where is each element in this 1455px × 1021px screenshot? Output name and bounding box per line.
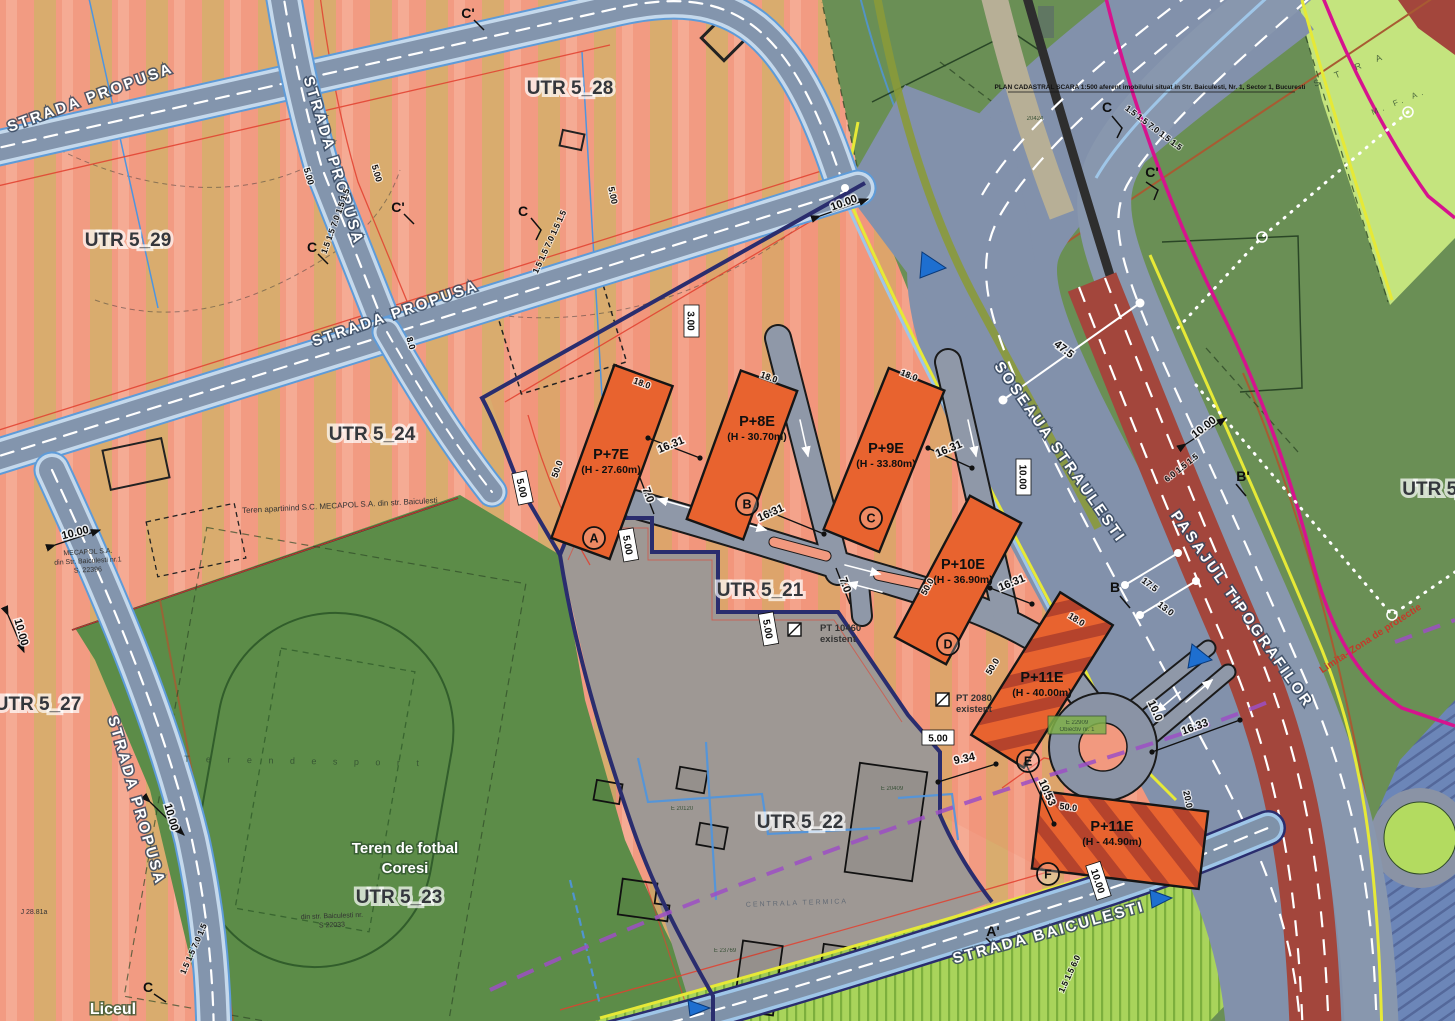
building-F-code: P+11E bbox=[1090, 819, 1133, 835]
zone-label-utr27: UTR 5_27 bbox=[0, 694, 81, 715]
building-A-letter: A bbox=[589, 532, 598, 546]
building-B-code: P+8E bbox=[739, 414, 775, 430]
zone-label-utr21: UTR 5_21 bbox=[717, 580, 804, 601]
cad-e20120: E 20120 bbox=[671, 806, 694, 812]
area-label-liceul: Liceul bbox=[90, 1001, 136, 1018]
section-cp-2: C' bbox=[461, 5, 474, 21]
building-C-code: P+9E bbox=[868, 441, 904, 457]
section-cp-3: C' bbox=[1145, 164, 1158, 180]
note-j2881: J 28.81a bbox=[21, 909, 48, 916]
building-D-height: (H - 36.90m) bbox=[933, 574, 993, 586]
cad-e20409: E 20409 bbox=[881, 786, 904, 792]
building-E-code: P+11E bbox=[1020, 670, 1063, 686]
zone-label-utr24: UTR 5_24 bbox=[329, 424, 416, 445]
note-mecapol-3: S. 22396 bbox=[74, 566, 102, 574]
note-pt10460: PT 10460 bbox=[820, 623, 861, 634]
note-obiectiv-2: Obiectiv nr. 1 bbox=[1059, 727, 1095, 733]
section-cp-1: C' bbox=[391, 199, 404, 215]
section-bp: B' bbox=[1236, 468, 1249, 484]
building-F-height: (H - 44.90m) bbox=[1082, 836, 1142, 848]
section-c-1: C bbox=[307, 239, 317, 255]
note-pt2080-existent: existent bbox=[956, 704, 993, 715]
building-A-code: P+7E bbox=[593, 447, 629, 463]
building-E-letter: E bbox=[1024, 755, 1032, 769]
section-c-2: C bbox=[518, 203, 528, 219]
zone-label-utr22: UTR 5_22 bbox=[757, 812, 844, 833]
building-A-height: (H - 27.60m) bbox=[581, 464, 641, 476]
dim-3-00: 3.00 bbox=[685, 311, 696, 331]
area-label-football-1: Teren de fotbal bbox=[352, 840, 458, 857]
zoning-plan-svg: STRADA PROPUSA STRADA PROPUSA STRADA PRO… bbox=[0, 0, 1455, 1021]
note-plan-cadastral: PLAN CADASTRAL SCARA 1:500 aferent imobi… bbox=[995, 84, 1306, 91]
note-obiectiv-1: E 22909 bbox=[1066, 720, 1089, 726]
note-pt2080: PT 2080 bbox=[956, 693, 992, 704]
zone-label-utr23: UTR 5_23 bbox=[356, 887, 443, 908]
building-D-letter: D bbox=[943, 638, 952, 652]
section-c-3: C bbox=[1102, 99, 1112, 115]
building-B-height: (H - 30.70m) bbox=[727, 431, 787, 443]
building-D-code: P+10E bbox=[941, 557, 985, 573]
building-B-letter: B bbox=[742, 498, 751, 512]
note-s22033: S 22033 bbox=[319, 922, 345, 930]
section-c-4: C bbox=[143, 979, 153, 995]
zone-label-utr29: UTR 5_29 bbox=[85, 230, 172, 251]
cad-20424: 20424 bbox=[1027, 116, 1044, 122]
dim-50-0-d: 50.0 bbox=[1059, 801, 1078, 813]
area-label-football-2: Coresi bbox=[382, 860, 429, 877]
building-E-height: (H - 40.00m) bbox=[1012, 687, 1072, 699]
map-canvas: STRADA PROPUSA STRADA PROPUSA STRADA PRO… bbox=[0, 0, 1455, 1021]
building-C-height: (H - 33.80m) bbox=[856, 458, 916, 470]
zone-label-utr28: UTR 5_28 bbox=[527, 78, 614, 99]
note-pt10460-existent: existent bbox=[820, 634, 857, 645]
building-F-letter: F bbox=[1044, 868, 1052, 882]
section-b: B bbox=[1110, 579, 1120, 595]
building-C-letter: C bbox=[866, 512, 875, 526]
zone-label-utr5: UTR 5_ bbox=[1402, 479, 1455, 500]
section-ap: A' bbox=[986, 923, 999, 939]
interchange-loop-island bbox=[1384, 802, 1455, 874]
cad-e23769: E 23769 bbox=[714, 948, 737, 954]
dim-5-00-box-d: 5.00 bbox=[928, 734, 948, 745]
dim-10-00-box-a: 10.00 bbox=[1017, 464, 1028, 489]
